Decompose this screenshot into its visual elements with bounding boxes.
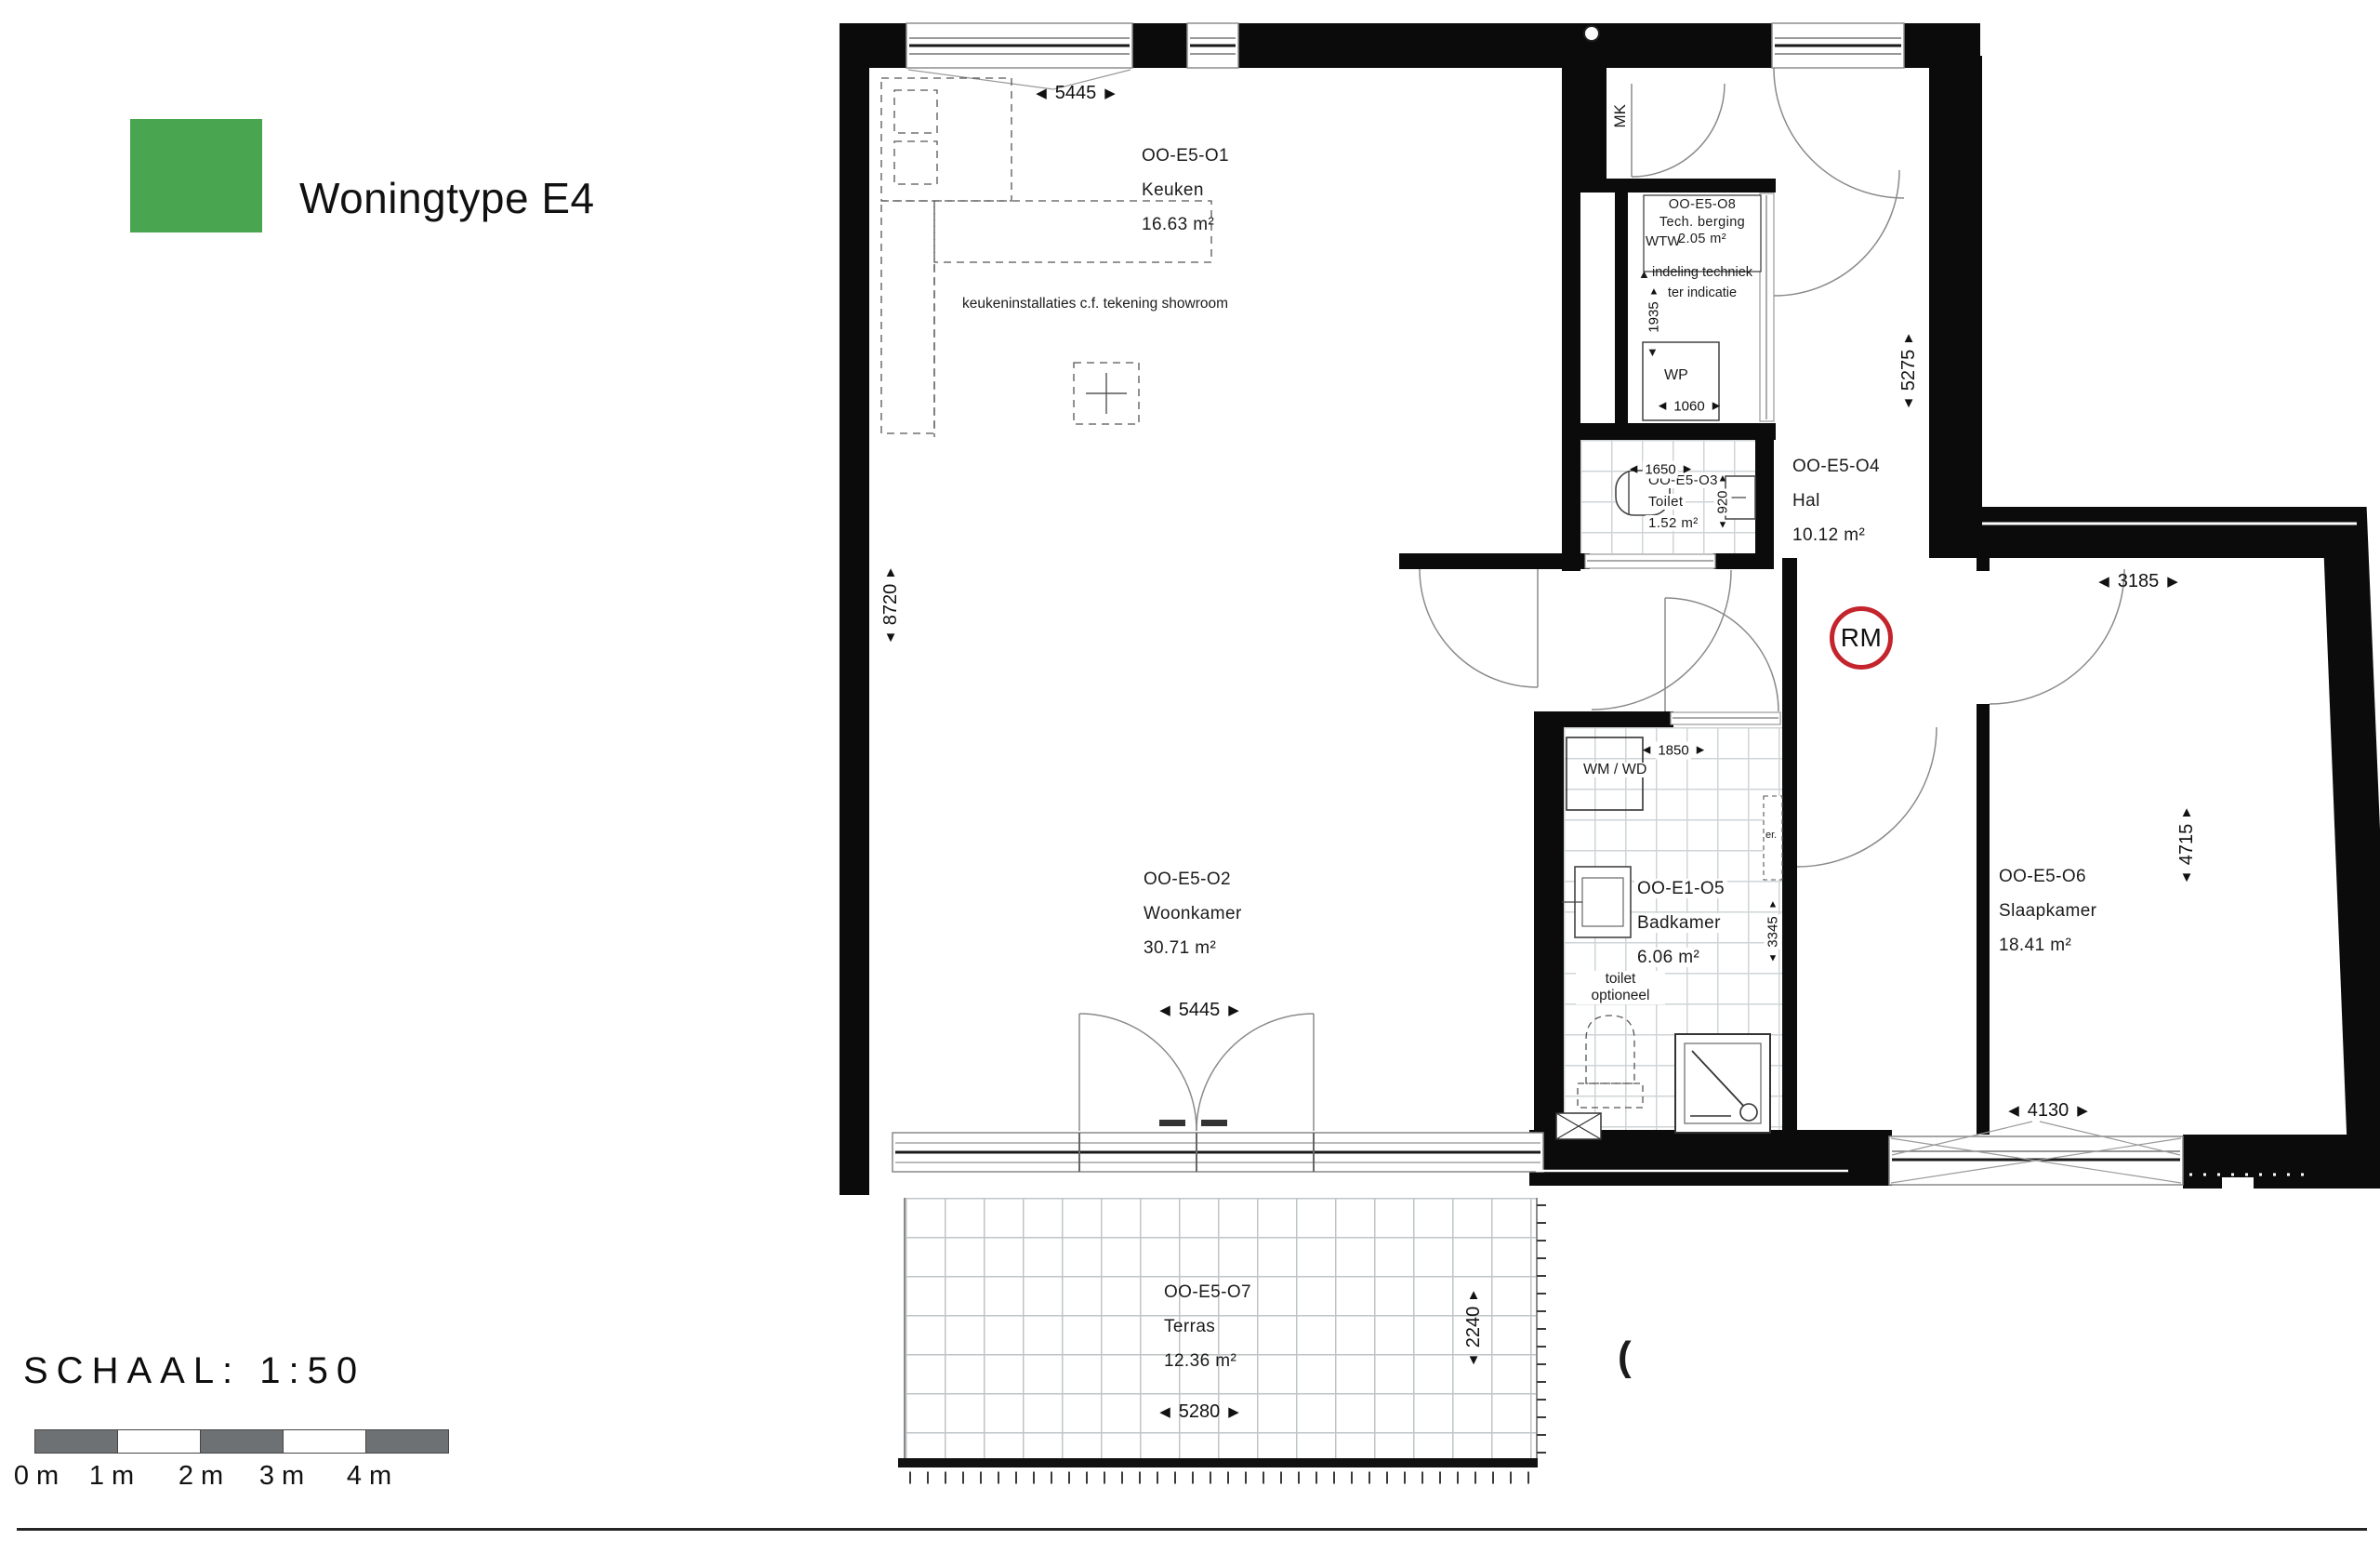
terrace-door-left-arc <box>1079 1014 1197 1131</box>
floorplan-page: Woningtype E4 <box>0 0 2380 1567</box>
scale-tick: 1 m <box>89 1461 134 1492</box>
arrow-left-icon: ◀ <box>1159 1003 1170 1017</box>
entrance-door-window <box>1772 23 1904 68</box>
arrow-right-icon: ▶ <box>1684 465 1691 475</box>
hal-glass-door-arc <box>1665 598 1778 711</box>
dim-toilet-width: ◀ 1650 ▶ <box>1630 461 1691 479</box>
scale-segment <box>365 1429 449 1454</box>
room-label-woonkamer: OO-E5-O2 Woonkamer 30.71 m² <box>1144 870 1242 974</box>
er-marker: er. <box>1765 830 1777 841</box>
slaapkamer-window <box>1889 1122 2183 1185</box>
terrace-door-right-arc <box>1197 1014 1314 1131</box>
room-area: 12.36 m² <box>1164 1352 1251 1370</box>
arrow-right-icon: ▶ <box>1228 1405 1239 1419</box>
room-name: Keuken <box>1142 181 1229 199</box>
scale-bar <box>35 1429 449 1454</box>
dim-hal-height: ▲ 5275 ▼ <box>1899 331 1918 410</box>
room-label-badkamer: OO-E1-O5 Badkamer 6.06 m² <box>1634 880 1727 983</box>
dim-facade-height: ▲ 8720 ▼ <box>881 565 900 644</box>
dim-slaapkamer-height: ▲ 4715 ▼ <box>2177 805 2196 884</box>
room-label-toilet: OO-E5-O3 Toilet 1.52 m² <box>1646 473 1721 538</box>
dim-keuken-width: ◀ 5445 ▶ <box>1036 84 1116 102</box>
tech-berging-door-frame <box>1760 193 1774 421</box>
wp-marker: WP <box>1664 368 1688 383</box>
arrow-right-icon: ▶ <box>1712 402 1720 412</box>
room-area: 10.12 m² <box>1792 526 1880 544</box>
arrow-right-icon: ▶ <box>1228 1003 1239 1017</box>
room-code: OO-E5-O2 <box>1144 870 1242 888</box>
dim-tech-height: ▲ 1935 <box>1647 286 1661 332</box>
optional-toilet-dashed <box>1578 1016 1643 1108</box>
wp-arrow-icon: ▼ <box>1646 346 1659 358</box>
door-handle-icon <box>1159 1120 1185 1126</box>
arrow-up-icon: ▲ <box>2180 805 2194 819</box>
room-label-slaapkamer: OO-E5-O6 Slaapkamer 18.41 m² <box>1999 868 2096 971</box>
scale-tick: 2 m <box>178 1461 223 1492</box>
arrow-right-icon: ▶ <box>1697 746 1704 756</box>
keuken-note: keukeninstallaties c.f. tekening showroo… <box>962 296 1228 312</box>
room-name: Tech. berging <box>1644 216 1761 230</box>
badkamer-door-arc <box>1797 727 1937 867</box>
arrow-right-icon: ▶ <box>1104 86 1116 100</box>
room-area: 1.52 m² <box>1646 515 1701 531</box>
scale-tick: 3 m <box>259 1461 304 1492</box>
arrow-up-icon: ▲ <box>1718 473 1728 484</box>
arrow-down-icon: ▼ <box>1718 521 1728 531</box>
arrow-down-icon: ▼ <box>1768 954 1778 964</box>
wtw-marker: WTW <box>1646 234 1680 248</box>
arrow-left-icon: ◀ <box>2008 1104 2019 1118</box>
room-label-terras: OO-E5-O7 Terras 12.36 m² <box>1164 1283 1251 1387</box>
arrow-left-icon: ◀ <box>1159 1405 1170 1419</box>
room-area: 18.41 m² <box>1999 936 2096 954</box>
scale-tick: 4 m <box>347 1461 391 1492</box>
room-label-hal: OO-E5-O4 Hal 10.12 m² <box>1792 458 1880 561</box>
mk-door-arc <box>1632 84 1725 177</box>
wm-wd-marker: WM / WD <box>1580 763 1649 777</box>
arrow-down-icon: ▼ <box>2180 870 2194 883</box>
keuken-small-window <box>1187 23 1238 68</box>
arrow-down-icon: ▼ <box>884 630 898 644</box>
arrow-up-icon: ▲ <box>1649 286 1659 297</box>
scale-heading: SCHAAL: 1:50 <box>23 1350 365 1392</box>
room-code: OO-E5-O4 <box>1792 458 1880 475</box>
scale-segment <box>117 1429 201 1454</box>
badkamer-note: toilet optioneel <box>1576 971 1665 1004</box>
room-label-keuken: OO-E5-O1 Keuken 16.63 m² <box>1142 147 1229 250</box>
scale-tick: 0 m <box>14 1461 59 1492</box>
kitchen-dashed-outline <box>881 78 1211 437</box>
rm-smoke-detector-badge: RM <box>1830 606 1893 670</box>
arrow-left-icon: ◀ <box>1036 86 1047 100</box>
arrow-left-icon: ◀ <box>1630 465 1637 475</box>
arrow-up-icon: ▲ <box>1768 899 1778 910</box>
toilet-door-arc <box>1592 570 1731 710</box>
kitchen-sink-cross-icon <box>1086 373 1127 414</box>
room-code: OO-E1-O5 <box>1634 879 1727 898</box>
room-name: Toilet <box>1646 494 1686 510</box>
tech-berging-note: indeling techniek ter indicatie <box>1647 262 1757 303</box>
scale-segment <box>200 1429 284 1454</box>
washbasin <box>1562 867 1631 937</box>
arrow-left-icon: ◀ <box>1659 402 1666 412</box>
woonkamer-door-arc <box>1420 569 1538 687</box>
dim-terras-width: ◀ 5280 ▶ <box>1159 1402 1239 1421</box>
arrow-right-icon: ▶ <box>2077 1104 2088 1118</box>
terras-edge-band <box>898 1458 1538 1467</box>
mk-marker: MK <box>1612 104 1628 128</box>
room-code: OO-E5-O7 <box>1164 1283 1251 1301</box>
shower <box>1675 1034 1770 1133</box>
badkamer-sliding-door <box>1671 712 1780 724</box>
dim-slaapkamer-window: ◀ 4130 ▶ <box>2008 1101 2088 1120</box>
dim-slaapkamer-width: ◀ 3185 ▶ <box>2098 572 2178 591</box>
dim-toilet-depth: ▲ 920 ▼ <box>1714 473 1732 530</box>
arrow-down-icon: ▼ <box>1902 395 1916 409</box>
arrow-up-icon: ▲ <box>1467 1288 1481 1302</box>
rm-label: RM <box>1841 623 1883 653</box>
room-name: Badkamer <box>1634 913 1724 933</box>
arrow-up-icon: ▲ <box>1902 331 1916 345</box>
arrow-left-icon: ◀ <box>1643 746 1650 756</box>
arrow-up-icon: ▲ <box>884 565 898 579</box>
arrow-right-icon: ▶ <box>2167 575 2178 589</box>
wtw-arrow-icon: ▲ <box>1638 268 1650 280</box>
door-handle-icon <box>1201 1120 1227 1126</box>
dim-badkamer-width: ◀ 1850 ▶ <box>1643 742 1704 760</box>
footer-divider <box>17 1528 2367 1531</box>
scale-segment <box>283 1429 366 1454</box>
room-area: 30.71 m² <box>1144 939 1242 957</box>
hal-closet-door-arc <box>1774 170 1899 296</box>
arrow-down-icon: ▼ <box>1467 1352 1481 1366</box>
dim-tech-width: ◀ 1060 ▶ <box>1659 398 1720 416</box>
room-area: 6.06 m² <box>1634 948 1702 967</box>
scale-segment <box>34 1429 118 1454</box>
entrance-door-arc <box>1774 68 1904 198</box>
room-name: Slaapkamer <box>1999 902 2096 920</box>
dim-terras-depth: ▲ 2240 ▼ <box>1464 1288 1483 1367</box>
room-name: Hal <box>1792 492 1880 510</box>
keuken-window <box>906 23 1132 89</box>
room-name: Woonkamer <box>1144 905 1242 923</box>
arrow-left-icon: ◀ <box>2098 575 2109 589</box>
wall-notch <box>2222 1177 2254 1189</box>
room-code: OO-E5-O6 <box>1999 868 2096 885</box>
ceiling-point-icon <box>1584 26 1599 41</box>
room-name: Terras <box>1164 1318 1251 1335</box>
shaft-crossed-box <box>1556 1113 1601 1139</box>
dim-badkamer-depth: ▲ 3345 ▼ <box>1765 899 1782 963</box>
woonkamer-facade-glazing <box>892 1120 1543 1172</box>
toilet-door-frame <box>1585 554 1715 568</box>
dim-woonkamer-width: ◀ 5445 ▶ <box>1159 1001 1239 1019</box>
room-code: OO-E5-O1 <box>1142 147 1229 165</box>
room-code: OO-E5-O8 <box>1644 198 1761 212</box>
room-area: 16.63 m² <box>1142 216 1229 233</box>
section-mark: ( <box>1618 1334 1632 1380</box>
